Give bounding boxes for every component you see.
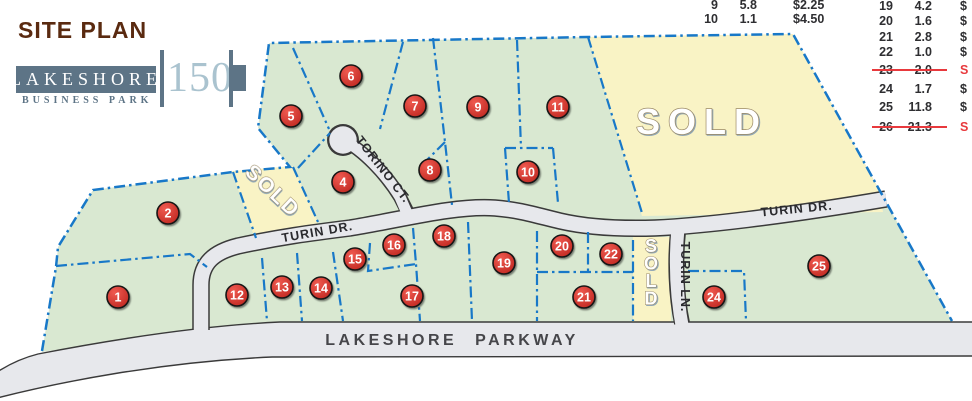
- turin-ln-label: TURIN LN.: [678, 242, 692, 313]
- svg-text:14: 14: [314, 281, 328, 295]
- cell-acres: 1.6: [893, 14, 932, 28]
- lot-marker-15[interactable]: 15: [344, 248, 366, 270]
- torino-ct-culdesac: [329, 126, 356, 153]
- svg-text:10: 10: [521, 165, 535, 179]
- svg-text:13: 13: [275, 280, 289, 294]
- cell-acres: 2.0: [893, 63, 932, 77]
- lot-marker-6[interactable]: 6: [340, 65, 362, 87]
- pricing-row-lot-25: 2511.8$: [868, 100, 967, 114]
- svg-text:1: 1: [115, 290, 122, 304]
- logo-number: 150: [167, 50, 233, 107]
- cell-lot: 26: [868, 120, 893, 134]
- lot-marker-11[interactable]: 11: [547, 96, 569, 118]
- svg-text:12: 12: [230, 288, 244, 302]
- sold-label-northeast: SOLD: [636, 101, 768, 142]
- lot-marker-2[interactable]: 2: [157, 202, 179, 224]
- pricing-row-lot-24: 241.7$: [868, 82, 967, 96]
- page-title: SITE PLAN: [18, 17, 147, 44]
- pricing-row-lot-19: 194.2$: [868, 0, 967, 13]
- svg-text:19: 19: [497, 256, 511, 270]
- lot-marker-19[interactable]: 19: [493, 252, 515, 274]
- pricing-row-lot-9: 95.8$2.25: [700, 0, 824, 12]
- logo-tab: [233, 65, 246, 91]
- cell-acres: 4.2: [893, 0, 932, 13]
- cell-price: $: [960, 45, 967, 59]
- svg-text:7: 7: [412, 99, 419, 113]
- cell-lot: 19: [868, 0, 893, 13]
- lot-marker-5[interactable]: 5: [280, 105, 302, 127]
- svg-text:6: 6: [348, 69, 355, 83]
- cell-price: $: [960, 30, 967, 44]
- svg-text:9: 9: [475, 100, 482, 114]
- logo-name-text: LAKESHORE: [10, 69, 162, 90]
- cell-price: S: [960, 120, 968, 134]
- svg-text:11: 11: [551, 100, 564, 114]
- logo-name-box: LAKESHORE: [16, 66, 156, 93]
- lot-marker-7[interactable]: 7: [404, 95, 426, 117]
- cell-lot: 24: [868, 82, 893, 96]
- cell-price: $: [960, 0, 967, 13]
- lot-marker-12[interactable]: 12: [226, 284, 248, 306]
- cell-acres: 2.8: [893, 30, 932, 44]
- sold-label-strip: SOLD: [644, 236, 658, 309]
- svg-text:20: 20: [555, 239, 569, 253]
- svg-text:17: 17: [405, 289, 419, 303]
- svg-text:2: 2: [165, 206, 172, 220]
- svg-text:4: 4: [340, 175, 347, 189]
- cell-acres: 1.7: [893, 82, 932, 96]
- logo-divider-bar: [160, 50, 164, 107]
- cell-lot: 21: [868, 30, 893, 44]
- cell-acres: 5.8: [718, 0, 757, 12]
- pricing-row-lot-21: 212.8$: [868, 30, 967, 44]
- svg-text:15: 15: [348, 252, 362, 266]
- pricing-row-lot-10: 101.1$4.50: [700, 12, 824, 26]
- lot-marker-10[interactable]: 10: [517, 161, 539, 183]
- lot-marker-8[interactable]: 8: [419, 159, 441, 181]
- pricing-row-lot-20: 201.6$: [868, 14, 967, 28]
- svg-text:18: 18: [437, 229, 451, 243]
- pricing-row-lot-23: 232.0S: [868, 63, 968, 77]
- cell-lot: 23: [868, 63, 893, 77]
- pricing-row-lot-26: 2621.3S: [868, 120, 968, 134]
- cell-price: $: [960, 100, 967, 114]
- cell-acres: 1.0: [893, 45, 932, 59]
- svg-text:22: 22: [604, 247, 618, 261]
- cell-price: S: [960, 63, 968, 77]
- cell-lot: 10: [700, 12, 718, 26]
- lot-marker-9[interactable]: 9: [467, 96, 489, 118]
- lot-marker-16[interactable]: 16: [383, 234, 405, 256]
- lot-marker-22[interactable]: 22: [600, 243, 622, 265]
- cell-price: $4.50: [793, 12, 824, 26]
- logo-subtitle: BUSINESS PARK: [22, 95, 152, 106]
- svg-text:5: 5: [288, 109, 295, 123]
- pricing-row-lot-22: 221.0$: [868, 45, 967, 59]
- lot-marker-21[interactable]: 21: [573, 286, 595, 308]
- lot-marker-18[interactable]: 18: [433, 225, 455, 247]
- cell-acres: 21.3: [893, 120, 932, 134]
- cell-price: $2.25: [793, 0, 824, 12]
- site-plan-page: TURIN DR. TURIN DR. TORINO CT. TURIN LN.…: [0, 0, 972, 401]
- lot-marker-14[interactable]: 14: [310, 277, 332, 299]
- lot-marker-17[interactable]: 17: [401, 285, 423, 307]
- svg-text:16: 16: [387, 238, 401, 252]
- cell-lot: 22: [868, 45, 893, 59]
- lot-marker-20[interactable]: 20: [551, 235, 573, 257]
- cell-price: $: [960, 82, 967, 96]
- cell-lot: 9: [700, 0, 718, 12]
- cell-price: $: [960, 14, 967, 28]
- lot-marker-4[interactable]: 4: [332, 171, 354, 193]
- svg-text:24: 24: [707, 290, 721, 304]
- lot-marker-1[interactable]: 1: [107, 286, 129, 308]
- lot-marker-13[interactable]: 13: [271, 276, 293, 298]
- svg-text:8: 8: [427, 163, 434, 177]
- lot-marker-24[interactable]: 24: [703, 286, 725, 308]
- lot-marker-25[interactable]: 25: [808, 255, 830, 277]
- svg-text:25: 25: [812, 259, 826, 273]
- cell-acres: 11.8: [893, 100, 932, 114]
- svg-text:21: 21: [577, 290, 591, 304]
- lakeshore-parkway-label: LAKESHORE PARKWAY: [325, 332, 579, 349]
- site-plan-map: TURIN DR. TURIN DR. TORINO CT. TURIN LN.…: [0, 0, 972, 401]
- cell-lot: 25: [868, 100, 893, 114]
- cell-acres: 1.1: [718, 12, 757, 26]
- cell-lot: 20: [868, 14, 893, 28]
